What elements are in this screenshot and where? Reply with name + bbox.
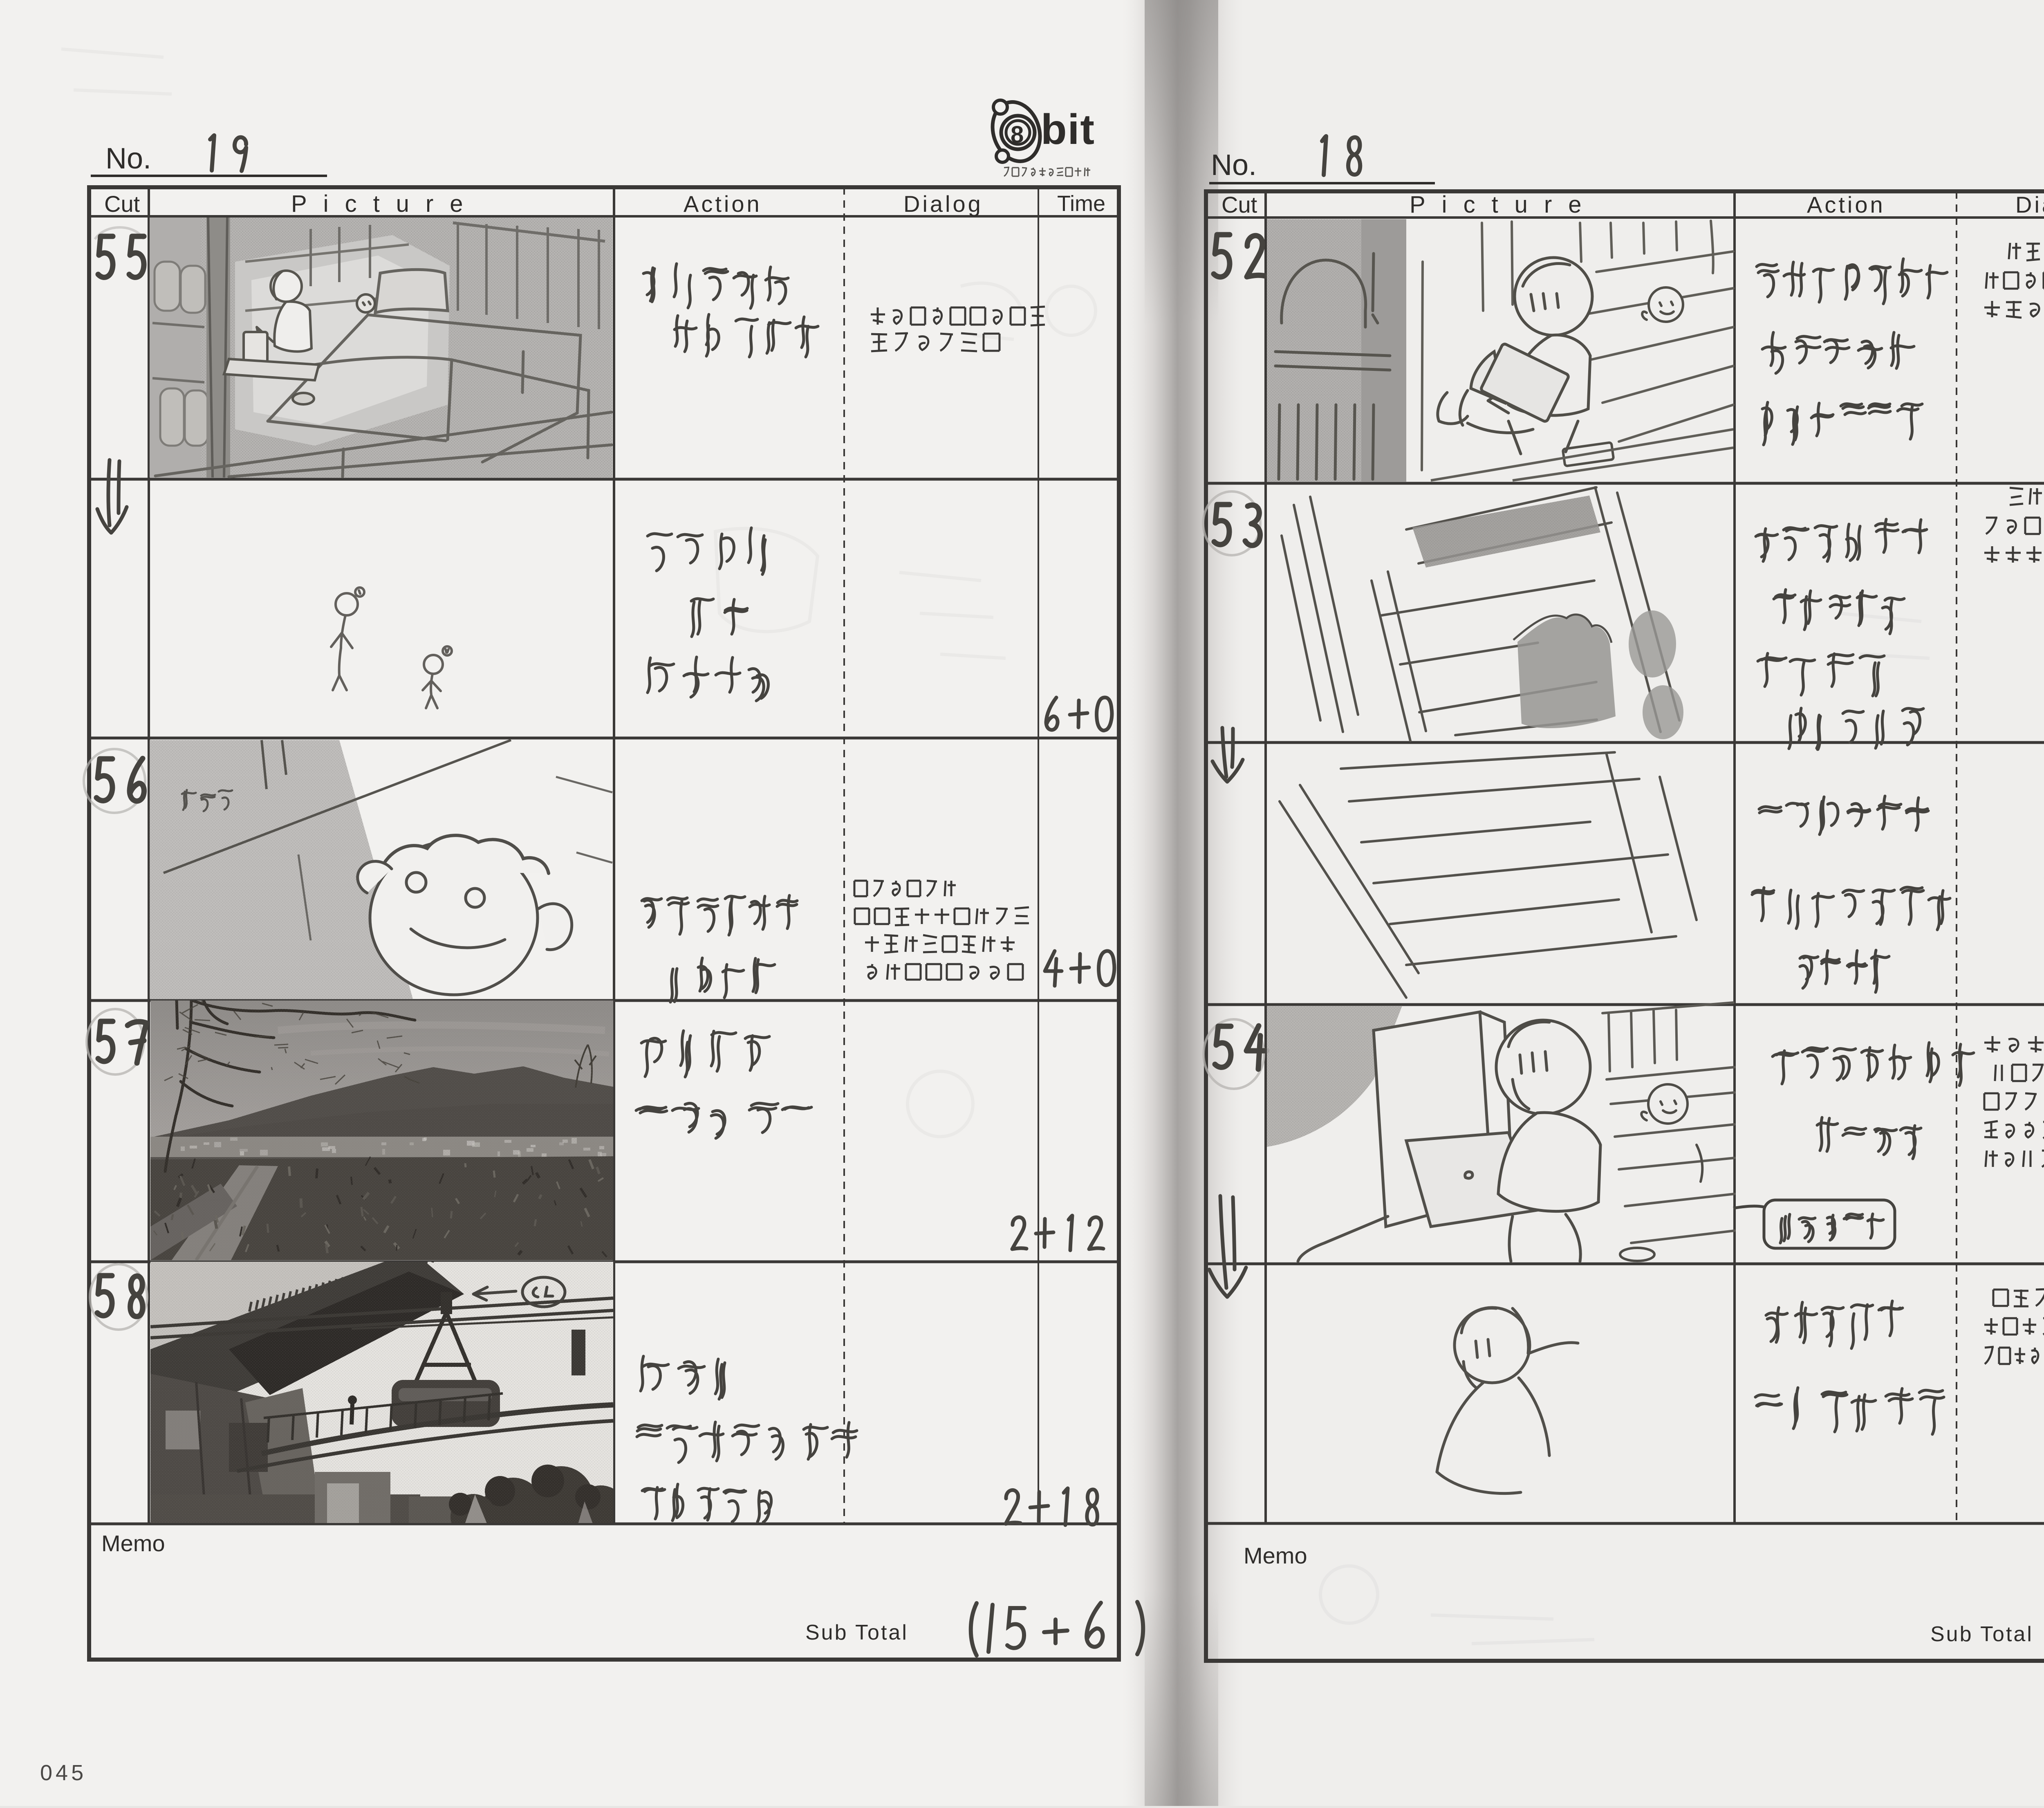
svg-text:No.: No. — [105, 142, 151, 175]
svg-text:Dialog: Dialog — [903, 191, 983, 217]
svg-text:Memo: Memo — [1244, 1543, 1307, 1568]
svg-text:Cut: Cut — [104, 191, 140, 217]
svg-text:Time: Time — [1057, 191, 1105, 216]
svg-text:Sub Total: Sub Total — [805, 1621, 908, 1644]
svg-text:8: 8 — [1011, 121, 1024, 148]
svg-text:bit: bit — [1041, 106, 1095, 153]
svg-text:Dialog: Dialog — [2015, 192, 2044, 218]
svg-text:Action: Action — [1807, 192, 1885, 218]
svg-text:Picture: Picture — [291, 191, 480, 217]
svg-text:Picture: Picture — [1410, 191, 1598, 218]
svg-text:Memo: Memo — [101, 1530, 165, 1556]
svg-text:045: 045 — [40, 1761, 87, 1785]
svg-text:Cut: Cut — [1221, 192, 1257, 218]
svg-text:Action: Action — [684, 191, 762, 217]
svg-text:No.: No. — [1211, 149, 1257, 182]
svg-text:Sub Total: Sub Total — [1930, 1622, 2033, 1646]
